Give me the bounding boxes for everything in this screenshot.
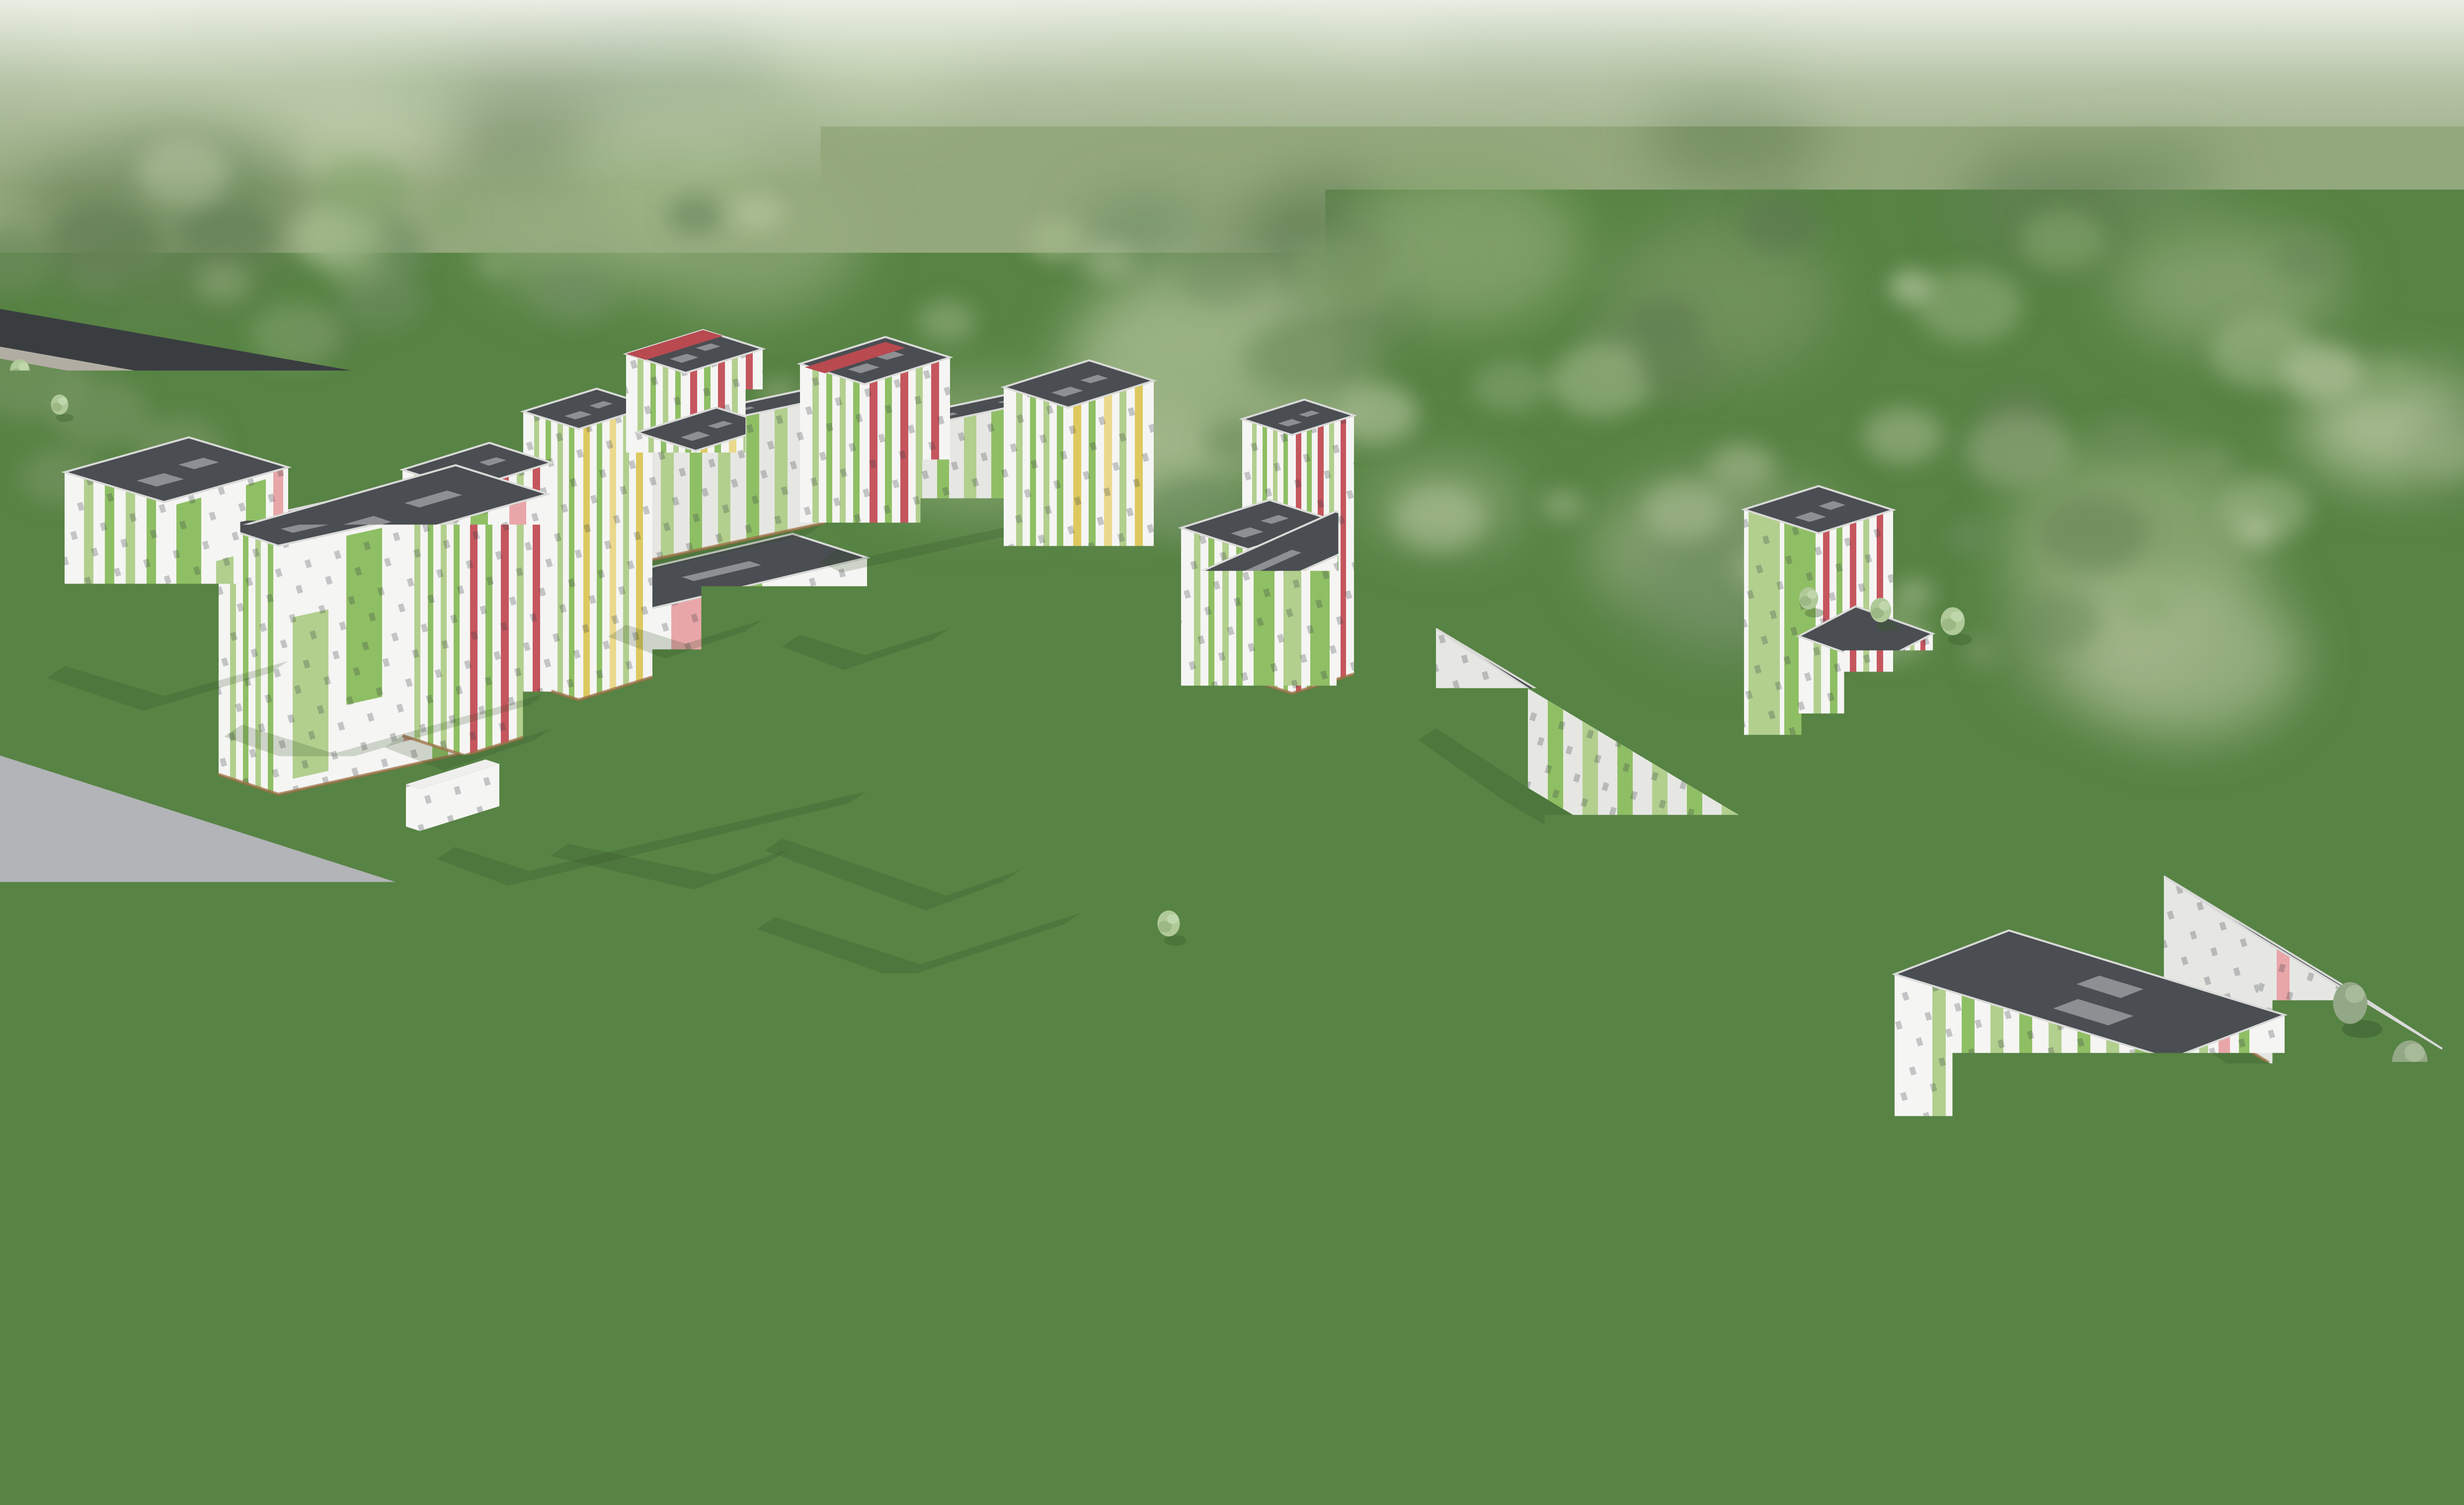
svg-text:Дом: Дом — [1208, 594, 1268, 629]
svg-text:Дом: Дом — [629, 469, 689, 503]
svg-text:Дом: Дом — [540, 354, 599, 389]
svg-text:Дом: Дом — [613, 684, 673, 719]
svg-text:8В: 8В — [298, 539, 390, 623]
svg-text:10А: 10А — [1171, 514, 1306, 598]
svg-text:Дом: Дом — [779, 407, 839, 441]
svg-text:11В: 11В — [1476, 814, 1605, 898]
svg-text:6: 6 — [1768, 471, 1810, 556]
svg-text:12Б: 12Б — [1960, 829, 2093, 913]
svg-text:Перспектива с птичего полета: Перспектива с птичего полета — [206, 1413, 694, 1449]
svg-text:Дом: Дом — [218, 464, 277, 499]
svg-text:8А: 8А — [613, 389, 706, 473]
svg-text:Дом: Дом — [1238, 466, 1298, 501]
svg-text:7А: 7А — [373, 348, 466, 433]
svg-text:Дом: Дом — [990, 427, 1049, 462]
svg-text:Дом: Дом — [1696, 719, 1756, 753]
svg-text:2: 2 — [549, 275, 591, 359]
svg-text:Дом: Дом — [1511, 895, 1571, 929]
svg-text:10В: 10В — [921, 699, 1055, 783]
svg-text:Дом: Дом — [1878, 830, 1938, 864]
svg-text:11А: 11А — [1662, 639, 1791, 723]
svg-text:3: 3 — [788, 328, 830, 412]
svg-text:9Б: 9Б — [597, 604, 689, 688]
svg-text:Дом: Дом — [1094, 674, 1153, 709]
svg-text:Дом: Дом — [1759, 550, 1819, 585]
svg-text:Дом: Дом — [1911, 1075, 1971, 1109]
svg-text:Дом: Дом — [958, 779, 1018, 814]
svg-text:Дом: Дом — [87, 524, 147, 559]
svg-text:11Б: 11Б — [1516, 673, 1644, 758]
svg-text:Дом: Дом — [1996, 910, 2056, 944]
svg-text:12А: 12А — [1841, 749, 1976, 833]
svg-text:5: 5 — [1247, 387, 1289, 472]
svg-text:8Б: 8Б — [483, 474, 574, 558]
svg-text:Дом: Дом — [499, 554, 558, 588]
svg-text:10Б: 10Б — [1057, 594, 1191, 678]
svg-text:9А: 9А — [752, 541, 845, 625]
svg-text:7В: 7В — [71, 444, 163, 528]
svg-text:12В: 12В — [1874, 994, 2008, 1078]
svg-text:Дом: Дом — [314, 619, 374, 654]
svg-text:Дом: Дом — [769, 623, 828, 657]
svg-text:Дом: Дом — [348, 296, 407, 331]
svg-text:Дом: Дом — [1550, 754, 1610, 789]
svg-text:1: 1 — [357, 217, 399, 302]
svg-text:7Б: 7Б — [202, 384, 293, 468]
svg-text:4: 4 — [999, 348, 1041, 432]
svg-text:Дом: Дом — [390, 429, 449, 464]
